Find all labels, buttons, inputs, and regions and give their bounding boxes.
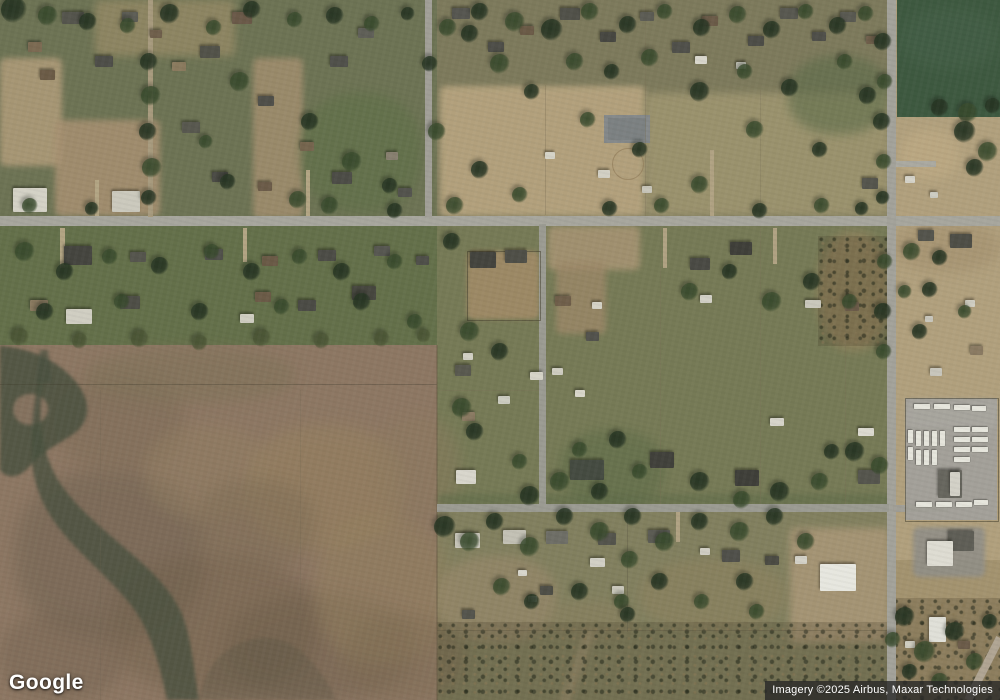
truck-trailer (972, 437, 988, 442)
truck-trailer (956, 502, 972, 507)
tree-canopy (364, 16, 380, 32)
tree-canopy (452, 398, 472, 418)
tree-canopy (746, 121, 764, 139)
building-roof (200, 46, 220, 58)
tree-canopy (690, 472, 710, 492)
building-roof (498, 396, 510, 404)
building-roof (598, 170, 610, 178)
building-roof (258, 182, 272, 191)
truck-trailer (954, 427, 970, 432)
tree-canopy (621, 551, 639, 569)
building-roof (805, 300, 821, 308)
tree-canopy (722, 264, 738, 280)
building-roof (780, 8, 798, 19)
building-roof (488, 42, 504, 52)
tree-canopy (401, 7, 415, 21)
building-roof (300, 142, 314, 151)
lot-line (760, 90, 761, 216)
driveway (306, 170, 310, 216)
tree-canopy (466, 423, 484, 441)
tree-canopy (321, 197, 339, 215)
satellite-map[interactable]: Google Imagery ©2025 Airbus, Maxar Techn… (0, 0, 1000, 700)
tree-canopy (581, 3, 599, 21)
tree-canopy (885, 632, 901, 648)
building-roof (950, 234, 972, 248)
tree-canopy (292, 249, 308, 265)
tree-canopy (460, 532, 480, 552)
tree-canopy (556, 508, 574, 526)
tree-canopy (102, 249, 118, 265)
building-roof (505, 250, 527, 263)
lot-line (0, 384, 437, 385)
tree-canopy (486, 513, 504, 531)
tree-canopy (798, 4, 814, 20)
building-roof (918, 230, 934, 241)
tree-canopy (651, 573, 669, 591)
tree-canopy (966, 159, 984, 177)
building-roof (374, 246, 390, 256)
building-roof (695, 56, 707, 64)
tree-canopy (954, 121, 976, 143)
lot-line (437, 390, 540, 391)
building-roof (700, 548, 710, 555)
truck-trailer (940, 431, 945, 446)
tree-canopy (566, 53, 584, 71)
tree-canopy (814, 198, 830, 214)
building-roof (66, 309, 92, 324)
building-roof (545, 152, 555, 159)
building-roof (130, 252, 146, 262)
building-roof (552, 368, 563, 375)
tree-canopy (79, 13, 97, 31)
tree-canopy (903, 243, 921, 261)
tree-canopy (619, 16, 637, 34)
tree-canopy (550, 472, 570, 492)
tree-canopy (770, 482, 790, 502)
building-roof (416, 256, 429, 265)
road-segment (425, 0, 432, 217)
truck-trailer (914, 404, 930, 409)
truck-trailer (954, 447, 970, 452)
tree-canopy (737, 64, 753, 80)
tree-canopy (274, 299, 290, 315)
tree-canopy (439, 19, 457, 37)
attribution-bar: Imagery ©2025 Airbus, Maxar Technologies (765, 681, 1000, 700)
lot-line (100, 390, 101, 700)
tree-canopy (220, 174, 236, 190)
building-roof (455, 365, 471, 376)
tree-canopy (604, 64, 620, 80)
tree-canopy (520, 486, 540, 506)
tree-canopy (230, 72, 250, 92)
tree-canopy (690, 82, 710, 102)
tree-canopy (524, 84, 540, 100)
building-roof (690, 258, 710, 270)
tree-canopy (812, 142, 828, 158)
tree-canopy (428, 123, 446, 141)
truck-trailer (916, 502, 932, 507)
tree-canopy (56, 263, 74, 281)
tree-canopy (591, 483, 609, 501)
tree-canopy (471, 3, 489, 21)
tree-canopy (829, 17, 847, 35)
building-roof (518, 570, 527, 576)
truck-trailer (974, 500, 988, 505)
building-roof (330, 56, 348, 67)
tree-canopy (874, 33, 892, 51)
truck-trailer (924, 431, 929, 446)
tree-canopy (876, 154, 892, 170)
tree-canopy (512, 187, 528, 203)
building-roof (812, 32, 826, 41)
truck-trailer (916, 450, 921, 465)
lot-line (645, 0, 646, 216)
tree-canopy (632, 142, 648, 158)
building-roof (590, 558, 605, 567)
tree-canopy (978, 142, 998, 162)
tree-canopy (417, 329, 431, 343)
tree-canopy (877, 74, 893, 90)
tree-canopy (922, 282, 938, 298)
truck-trailer (954, 457, 970, 462)
tree-canopy (932, 250, 948, 266)
tree-canopy (243, 263, 261, 281)
building-roof (820, 564, 856, 591)
tree-canopy (461, 25, 479, 43)
scrubland (818, 236, 890, 346)
google-logo[interactable]: Google (9, 671, 84, 695)
tree-canopy (681, 283, 699, 301)
building-roof (555, 296, 571, 306)
building-roof (150, 30, 162, 38)
tree-canopy (382, 178, 398, 194)
tree-canopy (914, 641, 936, 663)
tree-canopy (422, 56, 438, 72)
tree-canopy (749, 604, 765, 620)
building-roof (470, 252, 496, 268)
tree-canopy (876, 191, 890, 205)
road-segment (0, 216, 1000, 226)
driveway (773, 228, 777, 264)
tree-canopy (289, 191, 307, 209)
building-roof (112, 191, 140, 212)
tree-canopy (387, 203, 403, 219)
building-roof (770, 418, 784, 426)
building-roof (255, 292, 271, 302)
truck-trailer (936, 502, 952, 507)
building-roof (722, 550, 740, 562)
tree-canopy (898, 285, 912, 299)
tree-canopy (493, 578, 511, 596)
tree-canopy (524, 594, 540, 610)
tree-canopy (490, 54, 510, 74)
tree-canopy (873, 113, 891, 131)
tree-canopy (326, 7, 344, 25)
imagery-layers (0, 0, 1000, 700)
tree-canopy (655, 532, 675, 552)
tree-canopy (36, 303, 54, 321)
building-roof (575, 390, 585, 397)
building-roof (925, 316, 933, 322)
lot-line (300, 390, 301, 700)
tree-canopy (160, 4, 180, 24)
road-segment (896, 161, 936, 167)
tree-canopy (877, 254, 893, 270)
building-roof (452, 8, 470, 19)
tree-canopy (199, 135, 213, 149)
tree-canopy (353, 293, 371, 311)
tree-canopy (512, 454, 528, 470)
tree-canopy (114, 294, 130, 310)
lot-line (437, 630, 892, 631)
building-roof (970, 346, 983, 355)
tree-canopy (729, 6, 747, 24)
tree-canopy (763, 21, 781, 39)
tree-canopy (691, 176, 709, 194)
building-roof (640, 12, 654, 21)
tree-canopy (446, 197, 464, 215)
road-segment (437, 504, 889, 512)
tree-canopy (842, 294, 858, 310)
building-roof (642, 186, 652, 193)
tree-canopy (858, 6, 874, 22)
lot-line (760, 224, 761, 504)
building-roof (700, 295, 712, 303)
building-roof (560, 8, 580, 20)
tree-canopy (985, 98, 1000, 114)
building-roof (318, 250, 336, 261)
tree-canopy (151, 257, 169, 275)
tree-canopy (730, 522, 750, 542)
building-roof (546, 531, 568, 544)
building-roof (592, 302, 602, 309)
tree-canopy (206, 20, 222, 36)
tree-canopy (694, 594, 710, 610)
tree-canopy (966, 653, 984, 671)
building-roof (28, 42, 42, 52)
building-roof (930, 368, 942, 376)
building-roof (570, 460, 604, 480)
building-roof (748, 36, 764, 46)
building-roof (182, 122, 200, 133)
truck-trailer (954, 405, 970, 410)
tree-canopy (38, 6, 58, 26)
tree-canopy (657, 4, 673, 20)
building-roof (927, 541, 953, 566)
driveway (663, 228, 667, 268)
tree-canopy (620, 607, 636, 623)
tree-canopy (131, 330, 149, 348)
building-roof (600, 32, 616, 42)
tree-canopy (505, 12, 525, 32)
building-roof (398, 188, 412, 197)
tree-canopy (287, 12, 303, 28)
truck-trailer (932, 431, 937, 446)
lot-line (845, 224, 846, 504)
truck-trailer (932, 450, 937, 465)
building-roof (172, 62, 186, 71)
tree-canopy (342, 152, 362, 172)
tree-canopy (387, 254, 403, 270)
tree-canopy (141, 86, 161, 106)
tree-canopy (140, 53, 158, 71)
truck-trailer (954, 437, 970, 442)
tree-canopy (443, 233, 461, 251)
tree-canopy (958, 305, 972, 319)
building-roof (40, 70, 55, 80)
building-roof (765, 556, 779, 565)
building-roof (463, 353, 473, 360)
tree-canopy (902, 664, 918, 680)
building-roof (958, 641, 970, 649)
tree-canopy (374, 331, 390, 347)
tree-canopy (609, 431, 627, 449)
building-roof (586, 332, 599, 341)
tree-canopy (803, 273, 821, 291)
tree-canopy (641, 49, 659, 67)
tree-canopy (253, 329, 271, 347)
tree-canopy (580, 112, 596, 128)
tree-canopy (571, 583, 589, 601)
tree-canopy (811, 473, 829, 491)
building-roof (650, 452, 674, 468)
tree-canopy (491, 343, 509, 361)
tree-canopy (797, 533, 815, 551)
tree-canopy (945, 622, 965, 642)
tree-canopy (845, 442, 865, 462)
tree-canopy (204, 244, 220, 260)
building-roof (64, 246, 92, 265)
tree-canopy (590, 522, 610, 542)
building-roof (262, 256, 278, 266)
tree-canopy (142, 158, 162, 178)
tree-canopy (632, 464, 648, 480)
tree-canopy (859, 87, 877, 105)
tree-canopy (931, 99, 949, 117)
lot-line (545, 85, 546, 215)
building-roof (258, 96, 274, 106)
truck-trailer (924, 450, 929, 465)
tree-canopy (874, 303, 892, 321)
tree-canopy (22, 198, 38, 214)
tree-canopy (958, 103, 978, 123)
building-roof (672, 42, 690, 53)
truck-trailer (972, 406, 986, 411)
tree-canopy (733, 491, 751, 509)
building-roof (930, 192, 938, 198)
tree-canopy (120, 18, 136, 34)
truck-trailer (908, 430, 913, 443)
truck-trailer (916, 431, 921, 446)
building-roof (456, 470, 476, 484)
building-roof (332, 172, 352, 184)
tree-canopy (824, 444, 840, 460)
tree-canopy (781, 79, 799, 97)
truck-trailer (908, 447, 913, 460)
tree-canopy (471, 161, 489, 179)
tree-canopy (460, 322, 480, 342)
building-roof (240, 314, 254, 323)
tree-canopy (602, 201, 618, 217)
tree-canopy (192, 335, 208, 351)
building-roof (858, 428, 874, 436)
tree-canopy (85, 202, 99, 216)
tree-canopy (11, 328, 29, 346)
building-roof (530, 372, 543, 380)
truck-trailer (972, 447, 988, 452)
tree-canopy (314, 333, 330, 349)
tree-canopy (693, 19, 711, 37)
building-roof (462, 610, 475, 619)
building-roof (905, 641, 915, 648)
building-roof (905, 176, 915, 183)
tree-canopy (520, 537, 540, 557)
building-roof (730, 242, 752, 255)
truck-trailer (934, 404, 950, 409)
tree-canopy (752, 203, 768, 219)
tree-canopy (139, 123, 157, 141)
building-roof (795, 556, 807, 564)
tree-canopy (895, 607, 915, 627)
building-roof (298, 300, 316, 311)
tree-canopy (871, 457, 889, 475)
tree-canopy (837, 54, 853, 70)
building-roof (386, 152, 398, 160)
tree-canopy (766, 508, 784, 526)
tree-canopy (191, 303, 209, 321)
tree-canopy (855, 202, 869, 216)
driveway (243, 228, 247, 262)
tree-canopy (762, 292, 782, 312)
building-roof (950, 472, 960, 496)
building-roof (735, 470, 759, 486)
tree-canopy (407, 314, 423, 330)
building-roof (540, 586, 553, 595)
tree-canopy (141, 190, 157, 206)
tree-canopy (434, 516, 456, 538)
tree-canopy (982, 614, 998, 630)
tree-canopy (333, 263, 351, 281)
tree-canopy (301, 113, 319, 131)
building-roof (929, 617, 946, 642)
tree-canopy (691, 513, 709, 531)
tree-canopy (243, 1, 261, 19)
tree-canopy (624, 508, 642, 526)
building-roof (612, 586, 624, 594)
tree-canopy (572, 442, 588, 458)
tree-canopy (654, 198, 670, 214)
tree-canopy (15, 242, 35, 262)
driveway (710, 150, 714, 216)
truck-trailer (972, 427, 988, 432)
tree-canopy (736, 573, 754, 591)
building-roof (95, 56, 113, 67)
tree-canopy (912, 324, 928, 340)
tree-canopy (541, 19, 563, 41)
tree-canopy (72, 333, 88, 349)
building-roof (862, 178, 878, 189)
tree-canopy (876, 344, 892, 360)
driveway (676, 512, 680, 542)
